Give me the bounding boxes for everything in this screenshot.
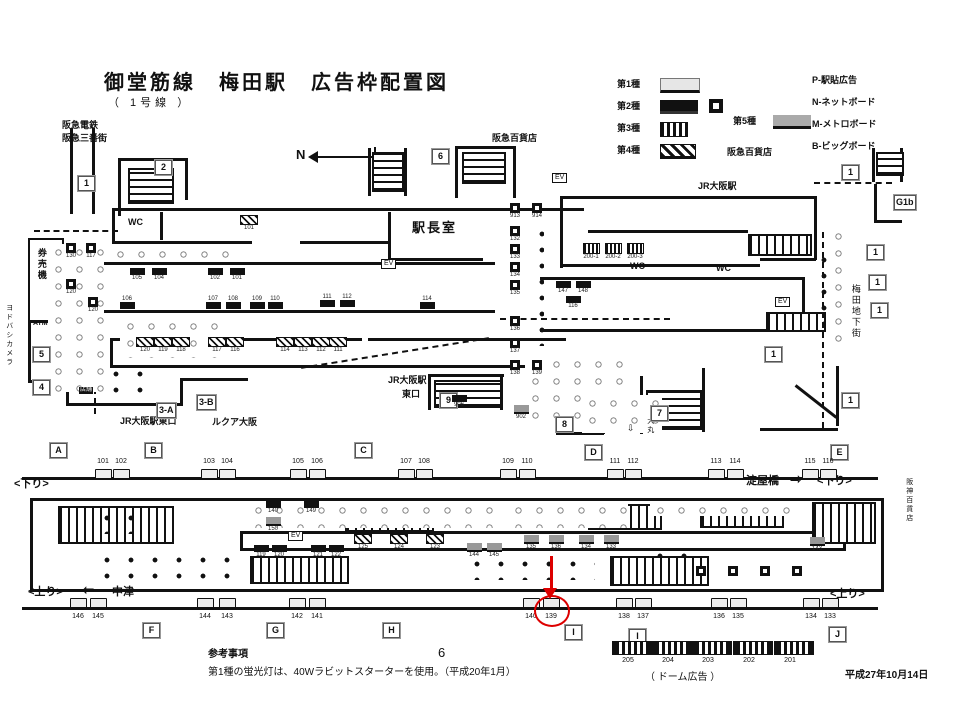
map-label: 券売機 (36, 248, 46, 281)
ad-number: 101 (226, 275, 248, 281)
ad-marker-symbol (510, 244, 520, 254)
notes-line: 第1種の蛍光灯は、40Wラビットスターターを使用。（平成20年1月） (208, 663, 516, 678)
ad-marker: 134 (504, 262, 526, 278)
map-label: ATM (33, 320, 48, 328)
dome-ad-swatch (612, 641, 652, 655)
ad-marker: 120 (82, 297, 104, 313)
ad-marker-symbol (467, 543, 482, 552)
ad-marker-symbol (556, 281, 571, 288)
ad-marker-symbol (268, 302, 283, 309)
ad-marker: 150 (262, 517, 284, 532)
map-number-box: G1b (894, 195, 916, 210)
platform-ad-number-bottom: 144 (194, 613, 216, 620)
legend-code-label: N-ネットボード (812, 98, 876, 108)
map-number-box: 1 (78, 176, 95, 191)
ad-number: 125 (352, 544, 374, 550)
ad-number: 122 (325, 552, 347, 558)
legend-type-swatch (660, 144, 696, 159)
ad-number: 118 (170, 347, 192, 353)
ad-number: 136 (545, 544, 567, 550)
ad-marker: 137 (504, 338, 526, 354)
ad-marker (786, 566, 808, 576)
ad-number: 140 (262, 508, 284, 514)
map-label: 中津 (112, 586, 134, 598)
platform-ad-tick-bottom (803, 598, 820, 608)
dome-ad-swatch (733, 641, 773, 655)
ad-marker: 111 (327, 337, 349, 353)
map-number-box: 1 (842, 165, 859, 180)
platform-ad-number-top: 108 (413, 458, 435, 465)
ad-marker: 147 (552, 281, 574, 294)
ad-marker-symbol (510, 226, 520, 236)
dome-caption: （ ドーム広告 ） (645, 668, 720, 683)
map-label: EV (775, 297, 790, 307)
ad-marker: 111 (316, 294, 338, 307)
ad-marker: 123 (424, 534, 446, 550)
legend-type-label: 第1種 (617, 80, 640, 90)
dome-ad-number: 203 (697, 657, 719, 664)
compass-north-label: N (296, 148, 305, 162)
ad-number: 138 (504, 370, 526, 376)
ad-marker: 138 (504, 360, 526, 376)
ad-marker-symbol (452, 395, 467, 402)
ad-number: 120 (82, 307, 104, 313)
ad-number: 139 (526, 370, 548, 376)
ad-number: 104 (148, 275, 170, 281)
station-ad-layout-diagram: 御堂筋線 梅田駅 広告枠配置図 （ 1号線 ） N 第1種第2種第3種第4種第5… (0, 0, 960, 720)
legend-type-label: 第2種 (617, 102, 640, 112)
ad-marker: 124 (388, 534, 410, 550)
map-number-box: 3-B (197, 395, 216, 410)
ad-marker: 135 (520, 535, 542, 550)
ad-marker: 200-1 (580, 243, 602, 260)
platform-ad-tick-bottom (70, 598, 87, 608)
map-number-box: 1 (869, 275, 886, 290)
platform-ad-tick-bottom (309, 598, 326, 608)
map-number-box: 6 (432, 149, 449, 164)
ad-number: 200-1 (580, 254, 602, 260)
ad-marker: 133 (504, 244, 526, 260)
ad-marker-symbol (583, 243, 600, 254)
dome-ad-swatch (652, 641, 692, 655)
ad-marker: 132 (504, 226, 526, 242)
map-label: 阪神百貨店 (905, 478, 913, 523)
platform-ad-tick-top (219, 469, 236, 479)
ad-marker: 105 (126, 268, 148, 281)
ad-marker-symbol (510, 338, 520, 348)
dome-ad-number: 204 (657, 657, 679, 664)
ad-marker-symbol (576, 281, 591, 288)
ad-marker: 120 (60, 279, 82, 295)
ad-marker-symbol (549, 535, 564, 544)
platform-ad-tick-top (309, 469, 326, 479)
ad-marker-symbol (566, 296, 581, 303)
ad-marker-symbol (226, 337, 244, 347)
map-number-box: D (585, 445, 602, 460)
red-circle (534, 595, 570, 627)
ad-marker-symbol (266, 517, 281, 526)
ad-marker: 133 (600, 535, 622, 550)
ad-number: 120 (60, 289, 82, 295)
ad-marker-symbol (510, 203, 520, 213)
legend-type-swatch (660, 122, 688, 137)
platform-ad-tick-top (802, 469, 819, 479)
map-label: 駅長室 (412, 221, 457, 235)
ad-marker (690, 566, 712, 576)
platform-ad-number-top: 114 (724, 458, 746, 465)
ad-marker-symbol (510, 262, 520, 272)
ad-marker-symbol (88, 297, 98, 307)
ad-marker: 902 (510, 405, 532, 420)
platform-ad-tick-top (820, 469, 837, 479)
platform-ad-tick-top (708, 469, 725, 479)
platform-ad-tick-top (95, 469, 112, 479)
map-label: WC (128, 218, 143, 228)
ad-marker: 143 (806, 537, 828, 552)
map-label: EV (552, 173, 567, 183)
platform-ad-number-bottom: 133 (819, 613, 841, 620)
ad-marker-symbol (487, 543, 502, 552)
map-label: WC (630, 262, 645, 272)
ad-marker-symbol (510, 316, 520, 326)
ad-marker-symbol (329, 337, 347, 347)
map-label: <下り> (14, 478, 49, 490)
ad-marker: 107 (202, 296, 224, 309)
ad-marker-symbol (66, 243, 76, 253)
map-label: ヨドバシカメラ (5, 304, 13, 367)
map-number-box: 7 (651, 406, 668, 421)
platform-ad-tick-top (290, 469, 307, 479)
ad-marker-symbol (514, 405, 529, 414)
platform-ad-tick-bottom (635, 598, 652, 608)
map-number-box: C (355, 443, 372, 458)
ad-number: 116 (562, 303, 584, 309)
ad-marker: 136 (504, 316, 526, 332)
ad-number: 134 (575, 544, 597, 550)
ad-number: 143 (806, 546, 828, 552)
ad-marker-symbol (420, 302, 435, 309)
ad-marker-symbol (152, 268, 167, 275)
platform-ad-tick-top (727, 469, 744, 479)
map-label: JR大阪駅東口 (120, 417, 177, 427)
map-number-box: 5 (33, 347, 50, 362)
ad-marker-symbol (329, 545, 344, 552)
platform-ad-number-top: 110 (516, 458, 538, 465)
map-number-box: 8 (556, 417, 573, 432)
ad-marker: 914 (526, 203, 548, 219)
ad-marker: 110 (264, 296, 286, 309)
map-number-box: 1 (765, 347, 782, 362)
ad-marker-symbol (120, 302, 135, 309)
ad-number: 101 (238, 225, 260, 231)
ad-marker: 913 (504, 203, 526, 219)
ad-number: 130 (60, 253, 82, 259)
ad-number: 132 (504, 236, 526, 242)
map-label: 店舗 (79, 387, 93, 394)
ad-number: 135 (504, 290, 526, 296)
ad-number: 144 (463, 552, 485, 558)
dome-ad-number: 205 (617, 657, 639, 664)
platform-ad-tick-top (607, 469, 624, 479)
page-subtitle: （ 1号線 ） (108, 94, 192, 110)
map-number-box: 1 (842, 393, 859, 408)
ad-marker: 130 (60, 243, 82, 259)
ad-number: 147 (552, 288, 574, 294)
platform-ad-tick-bottom (730, 598, 747, 608)
ad-marker-symbol (66, 279, 76, 289)
ad-marker-symbol (206, 302, 221, 309)
legend-type-label: 第4種 (617, 146, 640, 156)
ad-marker: 906 (448, 395, 470, 408)
ad-marker (754, 566, 776, 576)
map-label: WC (716, 264, 731, 274)
platform-ad-number-top: 106 (306, 458, 328, 465)
platform-ad-number-bottom: 135 (727, 613, 749, 620)
platform-ad-tick-top (201, 469, 218, 479)
map-number-box: 4 (33, 380, 50, 395)
ad-marker-symbol (426, 534, 444, 544)
ad-marker: 139 (526, 360, 548, 376)
ad-marker: 200-2 (602, 243, 624, 260)
ad-marker-symbol (792, 566, 802, 576)
map-number-box: H (383, 623, 400, 638)
platform-ad-number-top: 102 (110, 458, 132, 465)
ad-number: 105 (126, 275, 148, 281)
ad-marker: 120 (268, 545, 290, 558)
ad-marker-symbol (810, 537, 825, 546)
map-number-box: B (145, 443, 162, 458)
map-number-box: 3-A (157, 403, 176, 418)
map-label: EV (381, 259, 396, 269)
ad-number: 902 (510, 414, 532, 420)
ad-marker: 118 (170, 337, 192, 353)
ad-marker-symbol (696, 566, 706, 576)
ad-marker-symbol (86, 243, 96, 253)
ad-marker-symbol (627, 243, 644, 254)
ad-number: 116 (224, 347, 246, 353)
ad-marker: 104 (148, 268, 170, 281)
ad-marker-symbol (230, 268, 245, 275)
map-label: 東口 (402, 390, 420, 400)
legend-hankyu-dept-label: 阪急百貨店 (727, 148, 772, 158)
map-label: 阪急三番街 (62, 134, 107, 144)
ad-number: 102 (204, 275, 226, 281)
ad-marker-symbol (250, 302, 265, 309)
ad-number: 150 (262, 526, 284, 532)
ad-number: 145 (483, 552, 505, 558)
legend-code-label: P-駅貼広告 (812, 76, 857, 86)
page-number: 6 (438, 645, 445, 660)
ad-marker: 116 (562, 296, 584, 309)
dome-ad-swatch (774, 641, 814, 655)
ad-number: 133 (504, 254, 526, 260)
ad-marker: 101 (238, 215, 260, 231)
map-label: 淀屋橋 (746, 475, 779, 487)
ad-marker-symbol (532, 360, 542, 370)
map-label: EV (288, 531, 303, 541)
platform-ad-number-bottom: 146 (67, 613, 89, 620)
ad-marker-symbol (760, 566, 770, 576)
platform-ad-tick-top (625, 469, 642, 479)
ad-marker: 134 (575, 535, 597, 550)
legend-type5-label: 第5種 (733, 117, 756, 127)
ad-number: 120 (268, 552, 290, 558)
legend-type2-square-swatch (709, 99, 723, 113)
legend-type-swatch (660, 78, 700, 93)
platform-ad-number-top: 112 (622, 458, 644, 465)
map-label: JR大阪駅 (698, 182, 737, 192)
ad-marker-symbol (604, 535, 619, 544)
ad-marker: 114 (416, 296, 438, 309)
ad-marker: 125 (352, 534, 374, 550)
ad-marker: 112 (336, 294, 358, 307)
platform-ad-tick-bottom (197, 598, 214, 608)
legend-type-swatch (660, 100, 698, 114)
map-label: 梅田地下街 (850, 284, 860, 339)
ad-marker: 108 (222, 296, 244, 309)
ad-marker: 101 (226, 268, 248, 281)
ad-marker: 122 (325, 545, 347, 558)
ad-marker (722, 566, 744, 576)
ad-number: 200-3 (624, 254, 646, 260)
ad-number: 149 (300, 508, 322, 514)
ad-marker-symbol (605, 243, 622, 254)
ad-marker: 148 (572, 281, 594, 294)
ad-number: 117 (80, 253, 102, 259)
platform-ad-number-bottom: 142 (286, 613, 308, 620)
ad-marker: 136 (545, 535, 567, 550)
ad-marker-symbol (320, 300, 335, 307)
ad-marker: 117 (80, 243, 102, 259)
ad-number: 136 (504, 326, 526, 332)
ad-number: 123 (424, 544, 446, 550)
platform-ad-tick-top (113, 469, 130, 479)
ad-marker: 200-3 (624, 243, 646, 260)
platform-ad-tick-bottom (616, 598, 633, 608)
ad-marker-symbol (311, 545, 326, 552)
red-arrow-line (550, 556, 553, 590)
ad-marker-symbol (354, 534, 372, 544)
ad-marker-symbol (254, 545, 269, 552)
ad-marker: 135 (504, 280, 526, 296)
ad-number: 135 (520, 544, 542, 550)
ad-marker: 144 (463, 543, 485, 558)
legend-code-label: B-ビッグボード (812, 142, 876, 152)
ad-marker-symbol (728, 566, 738, 576)
ad-marker-symbol (272, 545, 287, 552)
legend-type-label: 第3種 (617, 124, 640, 134)
map-number-box: G (267, 623, 284, 638)
platform-ad-tick-bottom (711, 598, 728, 608)
ad-marker: 102 (204, 268, 226, 281)
ad-marker-symbol (340, 300, 355, 307)
map-number-box: A (50, 443, 67, 458)
compass-arrowhead-icon (308, 151, 318, 163)
platform-ad-number-bottom: 143 (216, 613, 238, 620)
ad-marker: 145 (483, 543, 505, 558)
map-number-box: 1 (867, 245, 884, 260)
ad-marker-symbol (208, 268, 223, 275)
ad-number: 148 (572, 288, 594, 294)
platform-ad-number-top: 116 (817, 458, 839, 465)
dome-ad-swatch (692, 641, 732, 655)
platform-ad-tick-bottom (219, 598, 236, 608)
platform-ad-tick-bottom (289, 598, 306, 608)
ad-number: 200-2 (602, 254, 624, 260)
ad-number: 124 (388, 544, 410, 550)
date-label: 平成27年10月14日 (845, 666, 928, 681)
map-label: <上り> (28, 586, 63, 598)
ad-number: 134 (504, 272, 526, 278)
platform-ad-number-top: 104 (216, 458, 238, 465)
ad-marker: 140 (262, 501, 284, 514)
platform-ad-tick-top (500, 469, 517, 479)
platform-ad-number-bottom: 137 (632, 613, 654, 620)
ad-marker: 116 (224, 337, 246, 353)
ad-marker-symbol (579, 535, 594, 544)
ad-number: 906 (448, 402, 470, 408)
map-number-box: I (565, 625, 582, 640)
dome-ad-number: 201 (779, 657, 801, 664)
map-label: 阪急電鉄 (62, 121, 98, 131)
platform-ad-tick-top (398, 469, 415, 479)
platform-ad-tick-bottom (822, 598, 839, 608)
ad-marker: 149 (300, 501, 322, 514)
legend-type5-swatch (773, 115, 811, 129)
ad-marker-symbol (226, 302, 241, 309)
ad-marker-symbol (172, 337, 190, 347)
ad-marker-symbol (304, 501, 319, 508)
map-number-box: 1 (871, 303, 888, 318)
up-track-line (22, 607, 878, 610)
ad-number: 137 (504, 348, 526, 354)
ad-marker-symbol (130, 268, 145, 275)
map-label: ⇨ (790, 472, 803, 489)
ad-marker: 106 (116, 296, 138, 309)
map-label: 阪急百貨店 (492, 134, 537, 144)
platform-ad-tick-top (416, 469, 433, 479)
map-number-box: 2 (155, 160, 172, 175)
page-title: 御堂筋線 梅田駅 広告枠配置図 (104, 66, 449, 95)
platform-ad-tick-bottom (90, 598, 107, 608)
ad-marker-symbol (390, 534, 408, 544)
map-number-box: J (829, 627, 846, 642)
map-label: ⇩ (627, 424, 635, 434)
dome-ad-number: 202 (738, 657, 760, 664)
ad-marker-symbol (510, 280, 520, 290)
ad-marker-symbol (240, 215, 258, 225)
platform-ad-number-bottom: 145 (87, 613, 109, 620)
ad-number: 111 (327, 347, 349, 353)
ad-marker-symbol (532, 203, 542, 213)
ad-marker-symbol (510, 360, 520, 370)
platform-ad-number-bottom: 141 (306, 613, 328, 620)
ad-number: 133 (600, 544, 622, 550)
notes-heading: 参考事項 (208, 645, 248, 660)
map-number-box: F (143, 623, 160, 638)
legend-code-label: M-メトロボード (812, 120, 877, 130)
platform-ad-tick-top (519, 469, 536, 479)
ad-number: 914 (526, 213, 548, 219)
ad-marker-symbol (524, 535, 539, 544)
ad-number: 913 (504, 213, 526, 219)
map-label: ルクア大阪 (212, 418, 257, 428)
ad-marker-symbol (266, 501, 281, 508)
map-label: JR大阪駅 (388, 376, 427, 386)
